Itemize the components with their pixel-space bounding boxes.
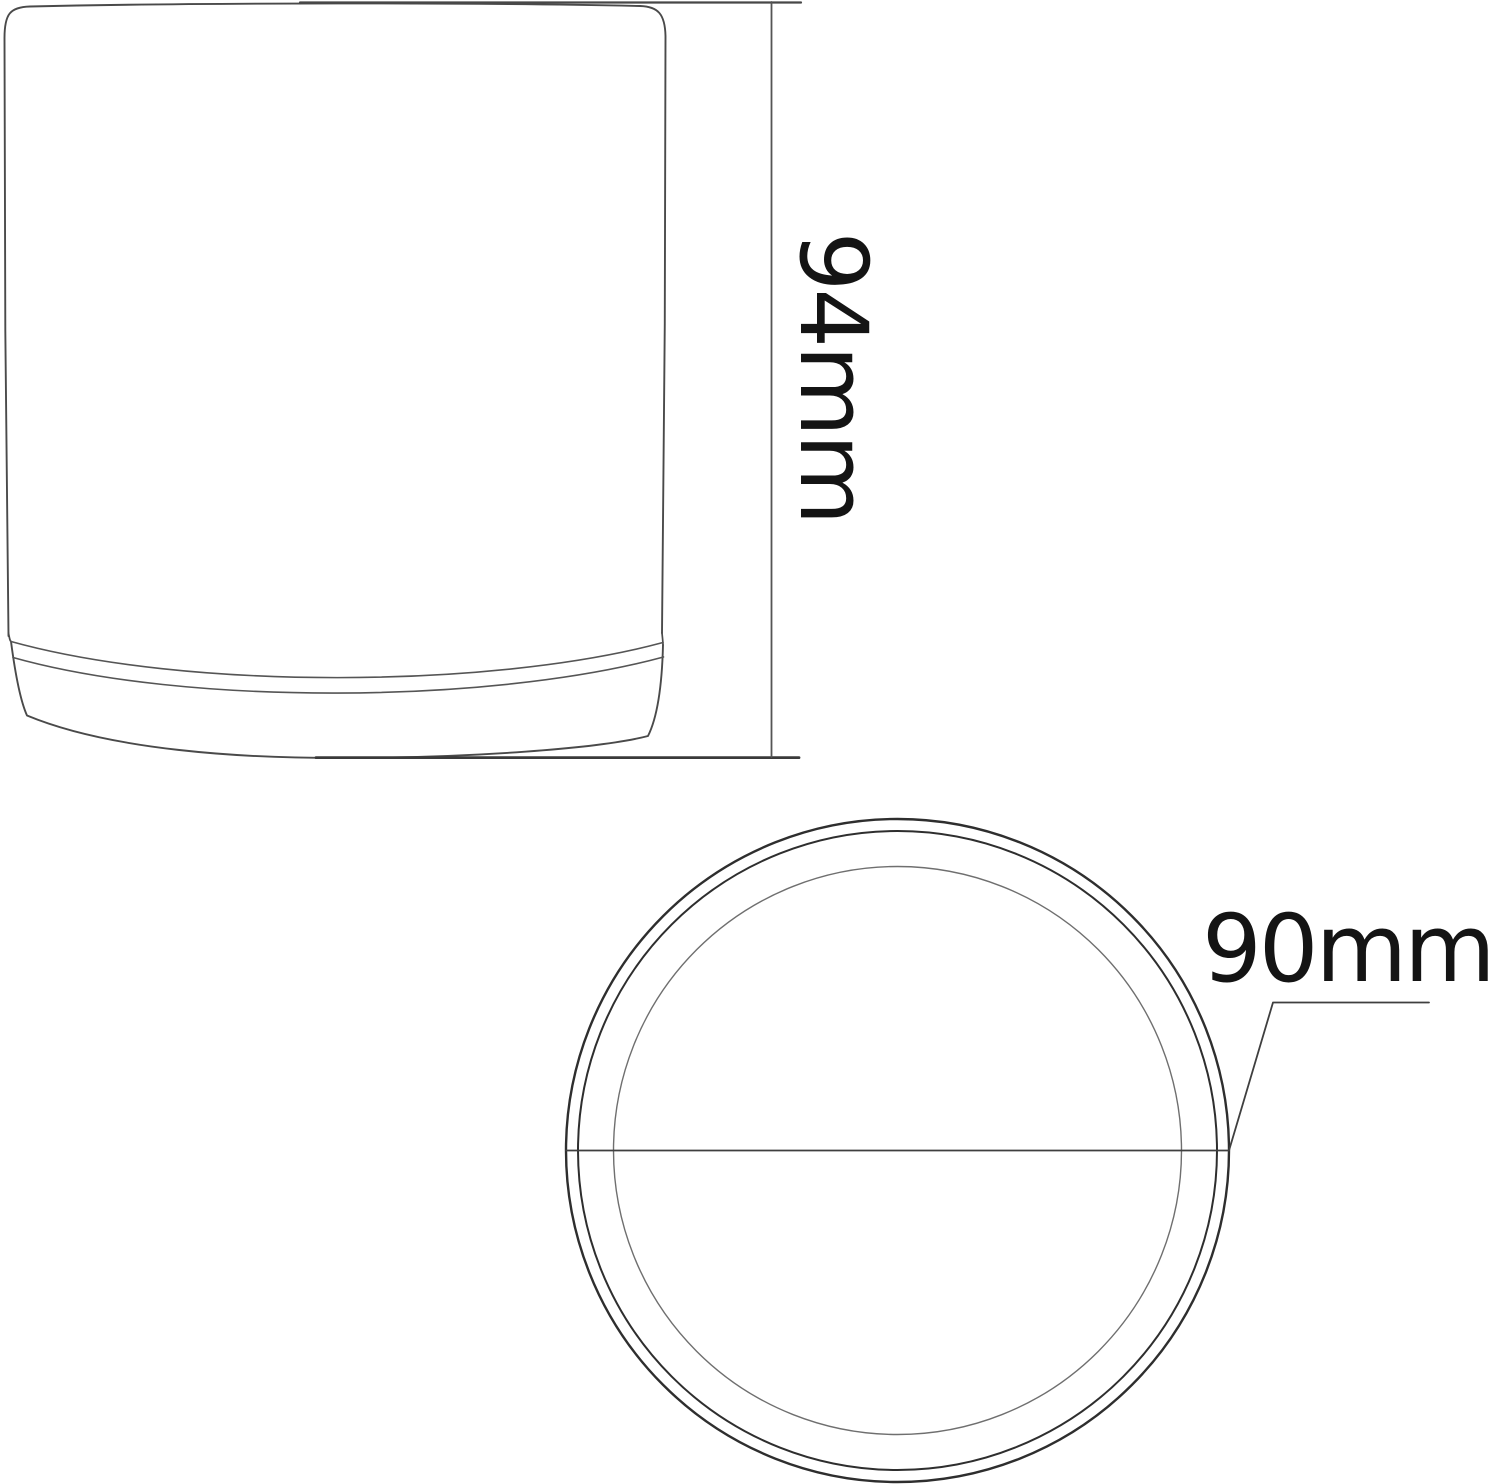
cylinder-base-outline <box>11 642 663 759</box>
diameter-dimension-label: 90mm <box>1202 903 1493 997</box>
height-dimension-label: 94mm <box>785 232 879 523</box>
cylinder-body-outline <box>4 3 665 636</box>
diameter-leader-line <box>1229 1003 1429 1151</box>
drawing-svg <box>0 0 1500 1484</box>
base-rim-upper-arc <box>11 642 663 678</box>
side-view <box>4 2 801 758</box>
technical-drawing-canvas: 94mm 90mm <box>0 0 1500 1484</box>
neck-notch-left <box>9 633 12 642</box>
